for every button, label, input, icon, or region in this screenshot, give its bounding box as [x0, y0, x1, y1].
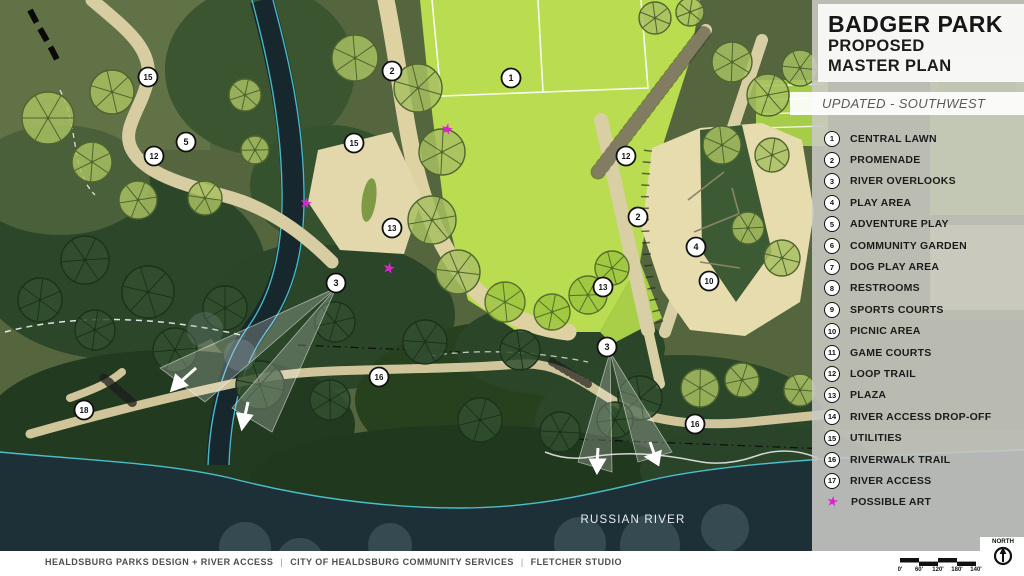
legend-label: ADVENTURE PLAY: [850, 218, 949, 230]
svg-text:3: 3: [333, 278, 338, 288]
legend-number-badge: 17: [824, 473, 840, 489]
tree-icon: [90, 70, 134, 114]
legend-number-badge: 9: [824, 302, 840, 318]
master-plan-page: RUSSIAN RIVER ★★★ 1551221151312241013331…: [0, 0, 1024, 576]
svg-text:12: 12: [622, 152, 631, 161]
legend-label: SPORTS COURTS: [850, 304, 944, 316]
legend-item-7: 7DOG PLAY AREA: [824, 256, 991, 277]
scale-bar: 0'60'120'180'140': [898, 554, 998, 576]
footer-bar: HEALDSBURG PARKS DESIGN + RIVER ACCESS|C…: [0, 551, 1024, 576]
tree-icon: [639, 2, 671, 34]
legend-number-badge: 10: [824, 323, 840, 339]
legend-label: PLAZA: [850, 389, 886, 401]
legend-label: COMMUNITY GARDEN: [850, 240, 967, 252]
legend-item-9: 9SPORTS COURTS: [824, 299, 991, 320]
tree-icon: [18, 278, 62, 322]
svg-text:13: 13: [388, 224, 397, 233]
map-marker-16: 16: [370, 368, 389, 387]
svg-text:4: 4: [693, 242, 698, 252]
svg-text:1: 1: [508, 73, 513, 83]
tree-icon: [485, 282, 525, 322]
svg-text:3: 3: [604, 342, 609, 352]
svg-text:16: 16: [691, 420, 700, 429]
map-marker-13: 13: [383, 219, 402, 238]
map-marker-2: 2: [629, 208, 648, 227]
legend-label: GAME COURTS: [850, 347, 932, 359]
legend-number-badge: 4: [824, 195, 840, 211]
svg-text:18: 18: [80, 406, 89, 415]
tree-icon: [188, 181, 222, 215]
credit-separator: |: [514, 557, 531, 567]
legend-label: RIVER ACCESS DROP-OFF: [850, 411, 991, 423]
tree-icon: [72, 142, 112, 182]
art-star-icon: ★: [823, 493, 843, 512]
legend-item-11: 11GAME COURTS: [824, 342, 991, 363]
tree-icon: [732, 212, 764, 244]
map-marker-13: 13: [594, 278, 613, 297]
tree-icon: [241, 136, 269, 164]
north-label: NORTH: [992, 538, 1015, 545]
tree-icon: [747, 74, 789, 116]
legend-label: RIVER OVERLOOKS: [850, 175, 956, 187]
legend-label: DOG PLAY AREA: [850, 261, 939, 273]
svg-text:2: 2: [389, 66, 394, 76]
svg-text:16: 16: [375, 373, 384, 382]
legend-label: POSSIBLE ART: [851, 496, 931, 508]
legend-label: RESTROOMS: [850, 282, 920, 294]
credit-text-2: FLETCHER STUDIO: [531, 557, 622, 567]
legend-item-16: 16RIVERWALK TRAIL: [824, 449, 991, 470]
tree-icon: [22, 92, 74, 144]
tree-icon: [725, 363, 759, 397]
credit-separator: |: [273, 557, 290, 567]
tree-icon: [122, 266, 174, 318]
legend-number-badge: 15: [824, 430, 840, 446]
map-marker-15: 15: [139, 68, 158, 87]
legend-panel: BADGER PARK PROPOSED MASTER PLAN UPDATED…: [812, 0, 1024, 551]
credit-text-1: CITY OF HEALDSBURG COMMUNITY SERVICES: [290, 557, 514, 567]
tree-icon: [332, 35, 378, 81]
legend-label: LOOP TRAIL: [850, 368, 916, 380]
svg-text:13: 13: [599, 283, 608, 292]
tree-icon: [310, 380, 350, 420]
update-note-band: UPDATED - SOUTHWEST: [790, 92, 1024, 115]
tree-icon: [458, 398, 502, 442]
legend-item-17: 17RIVER ACCESS: [824, 470, 991, 491]
legend-number-badge: 2: [824, 152, 840, 168]
title-block: BADGER PARK PROPOSED MASTER PLAN: [818, 4, 1024, 82]
tree-icon: [403, 320, 447, 364]
legend-item-6: 6COMMUNITY GARDEN: [824, 235, 991, 256]
tree-icon: [61, 236, 109, 284]
scale-labels: 0'60'120'180'140': [898, 567, 982, 573]
legend-item-4: 4PLAY AREA: [824, 192, 991, 213]
legend-item-14: 14RIVER ACCESS DROP-OFF: [824, 406, 991, 427]
map-marker-12: 12: [617, 147, 636, 166]
legend-item-10: 10PICNIC AREA: [824, 321, 991, 342]
svg-text:140': 140': [970, 567, 982, 573]
legend-label: UTILITIES: [850, 432, 902, 444]
legend-label: RIVER ACCESS: [850, 475, 931, 487]
map-marker-2: 2: [383, 62, 402, 81]
credits-line: HEALDSBURG PARKS DESIGN + RIVER ACCESS|C…: [45, 557, 622, 567]
tree-icon: [534, 294, 570, 330]
map-marker-16: 16: [686, 415, 705, 434]
legend-number-badge: 7: [824, 259, 840, 275]
map-marker-1: 1: [502, 69, 521, 88]
legend-item-3: 3RIVER OVERLOOKS: [824, 171, 991, 192]
legend-item-possible-art: ★POSSIBLE ART: [824, 492, 991, 513]
legend-item-5: 5ADVENTURE PLAY: [824, 214, 991, 235]
map-marker-4: 4: [687, 238, 706, 257]
tree-icon: [681, 369, 719, 407]
map-marker-15: 15: [345, 134, 364, 153]
legend-label: RIVERWALK TRAIL: [850, 454, 950, 466]
svg-text:120': 120': [932, 567, 944, 573]
tree-icon: [540, 412, 580, 452]
map-marker-12: 12: [145, 147, 164, 166]
legend-number-badge: 14: [824, 409, 840, 425]
legend-item-8: 8RESTROOMS: [824, 278, 991, 299]
tree-icon: [764, 240, 800, 276]
scale-bar-segments: [900, 558, 976, 566]
tree-icon: [755, 138, 789, 172]
tree-icon: [703, 126, 741, 164]
river-label: RUSSIAN RIVER: [580, 514, 685, 526]
legend-number-badge: 11: [824, 345, 840, 361]
page-subtitle-1: PROPOSED: [828, 36, 1024, 56]
tree-icon: [119, 181, 157, 219]
map-marker-3: 3: [598, 338, 617, 357]
svg-text:5: 5: [183, 137, 188, 147]
map-marker-10: 10: [700, 272, 719, 291]
credit-text-0: HEALDSBURG PARKS DESIGN + RIVER ACCESS: [45, 557, 273, 567]
svg-text:10: 10: [705, 277, 714, 286]
tree-icon: [712, 42, 752, 82]
legend-number-badge: 1: [824, 131, 840, 147]
tree-icon: [676, 0, 704, 26]
legend-list: 1CENTRAL LAWN2PROMENADE3RIVER OVERLOOKS4…: [824, 128, 991, 513]
svg-text:12: 12: [150, 152, 159, 161]
north-arrow: NORTH: [986, 535, 1020, 576]
legend-label: CENTRAL LAWN: [850, 133, 937, 145]
svg-text:2: 2: [635, 212, 640, 222]
legend-number-badge: 8: [824, 280, 840, 296]
svg-text:15: 15: [144, 73, 153, 82]
legend-item-15: 15UTILITIES: [824, 427, 991, 448]
legend-number-badge: 13: [824, 387, 840, 403]
tree-icon: [75, 310, 115, 350]
legend-number-badge: 3: [824, 173, 840, 189]
legend-item-1: 1CENTRAL LAWN: [824, 128, 991, 149]
map-marker-5: 5: [177, 133, 196, 152]
page-subtitle-2: MASTER PLAN: [828, 56, 1024, 76]
tree-icon: [436, 250, 480, 294]
tree-icon: [229, 79, 261, 111]
svg-text:15: 15: [350, 139, 359, 148]
legend-number-badge: 6: [824, 238, 840, 254]
legend-number-badge: 12: [824, 366, 840, 382]
map-marker-18: 18: [75, 401, 94, 420]
update-note: UPDATED - SOUTHWEST: [822, 96, 985, 111]
legend-label: PROMENADE: [850, 154, 921, 166]
legend-item-2: 2PROMENADE: [824, 149, 991, 170]
tree-icon: [500, 330, 540, 370]
tree-icon: [408, 196, 456, 244]
page-title: BADGER PARK: [828, 12, 1024, 36]
legend-item-12: 12LOOP TRAIL: [824, 363, 991, 384]
legend-number-badge: 16: [824, 452, 840, 468]
legend-number-badge: 5: [824, 216, 840, 232]
svg-text:180': 180': [951, 567, 963, 573]
svg-text:60': 60': [915, 567, 924, 573]
legend-item-13: 13PLAZA: [824, 385, 991, 406]
map-marker-3: 3: [327, 274, 346, 293]
legend-label: PICNIC AREA: [850, 325, 921, 337]
svg-text:0': 0': [898, 567, 903, 573]
legend-label: PLAY AREA: [850, 197, 911, 209]
